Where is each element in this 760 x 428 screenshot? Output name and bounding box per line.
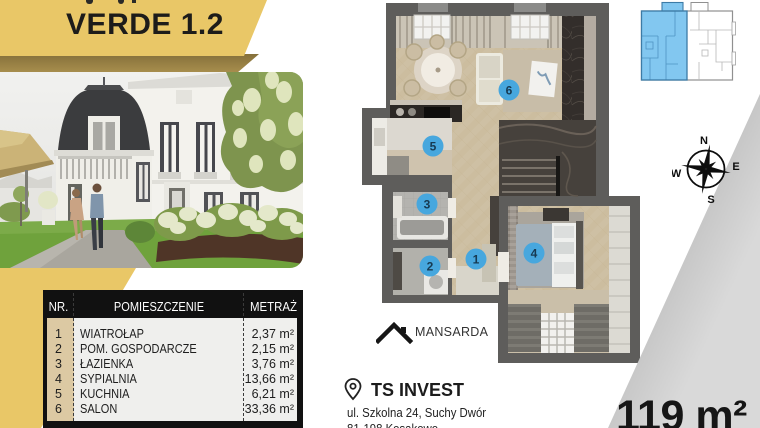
- svg-text:E: E: [732, 161, 739, 173]
- svg-text:W: W: [672, 168, 682, 180]
- svg-text:4: 4: [531, 247, 538, 261]
- svg-text:N: N: [700, 135, 708, 147]
- svg-text:S: S: [707, 194, 714, 206]
- svg-text:5: 5: [430, 140, 437, 154]
- svg-text:6: 6: [506, 84, 513, 98]
- svg-text:2: 2: [427, 260, 434, 274]
- svg-text:3: 3: [424, 198, 431, 212]
- svg-text:1: 1: [473, 253, 480, 267]
